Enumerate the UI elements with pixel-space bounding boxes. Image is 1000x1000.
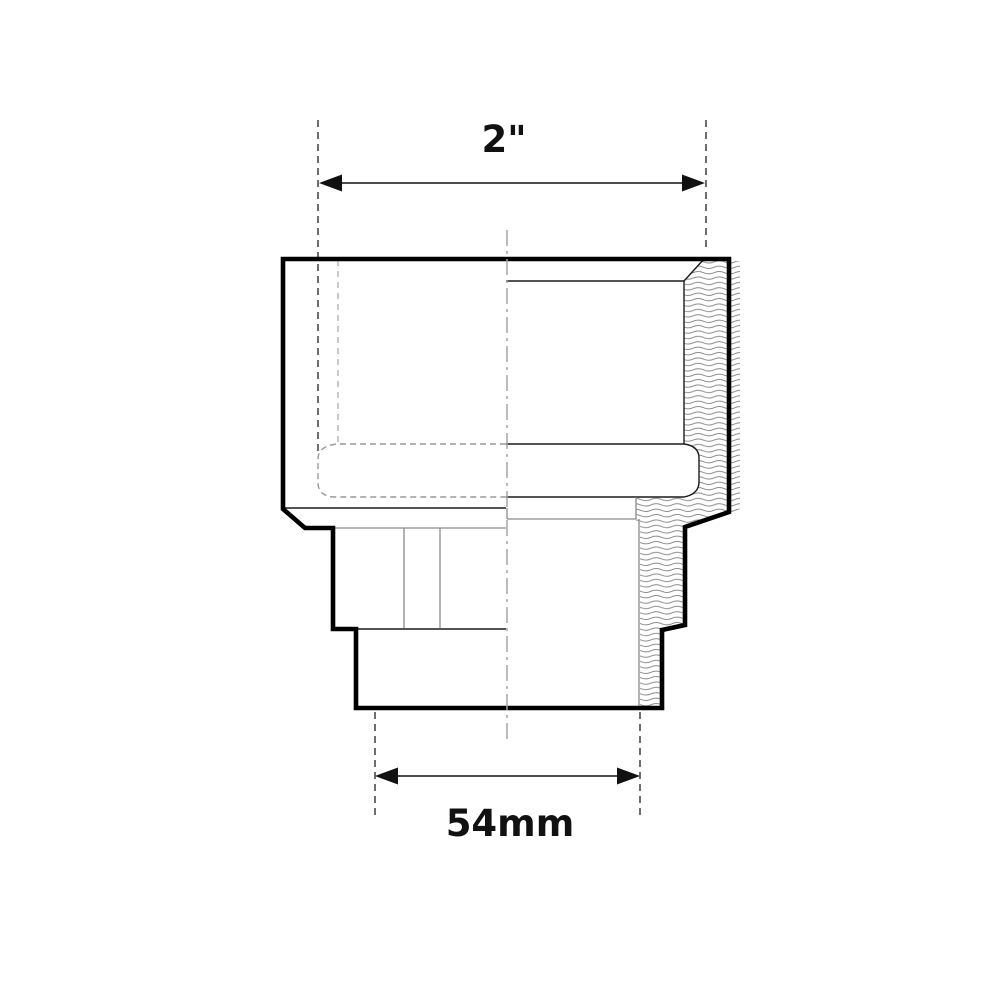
hidden-lines-group	[318, 120, 506, 497]
dimension-label-bottom: 54mm	[446, 802, 575, 845]
section-hatch-group	[636, 259, 740, 708]
pipe-fitting-section-drawing: 2" 54mm	[0, 0, 1000, 1000]
arrowhead-top-left	[319, 175, 342, 192]
dimension-label-top: 2"	[481, 118, 526, 161]
section-hatch-overflow-strip	[731, 261, 740, 513]
gray-detail-group	[335, 497, 639, 707]
hidden-capsule-outline	[318, 444, 506, 497]
fitting-outline	[283, 259, 729, 708]
arrowhead-bottom-right	[617, 768, 640, 785]
arrowhead-top-right	[682, 175, 705, 192]
section-hatch-main	[636, 259, 729, 708]
technical-drawing-page: 2" 54mm	[0, 0, 1000, 1000]
dimension-top-group: 2"	[319, 118, 706, 250]
arrowhead-bottom-left	[375, 768, 398, 785]
edge-capsule-section	[506, 444, 699, 497]
